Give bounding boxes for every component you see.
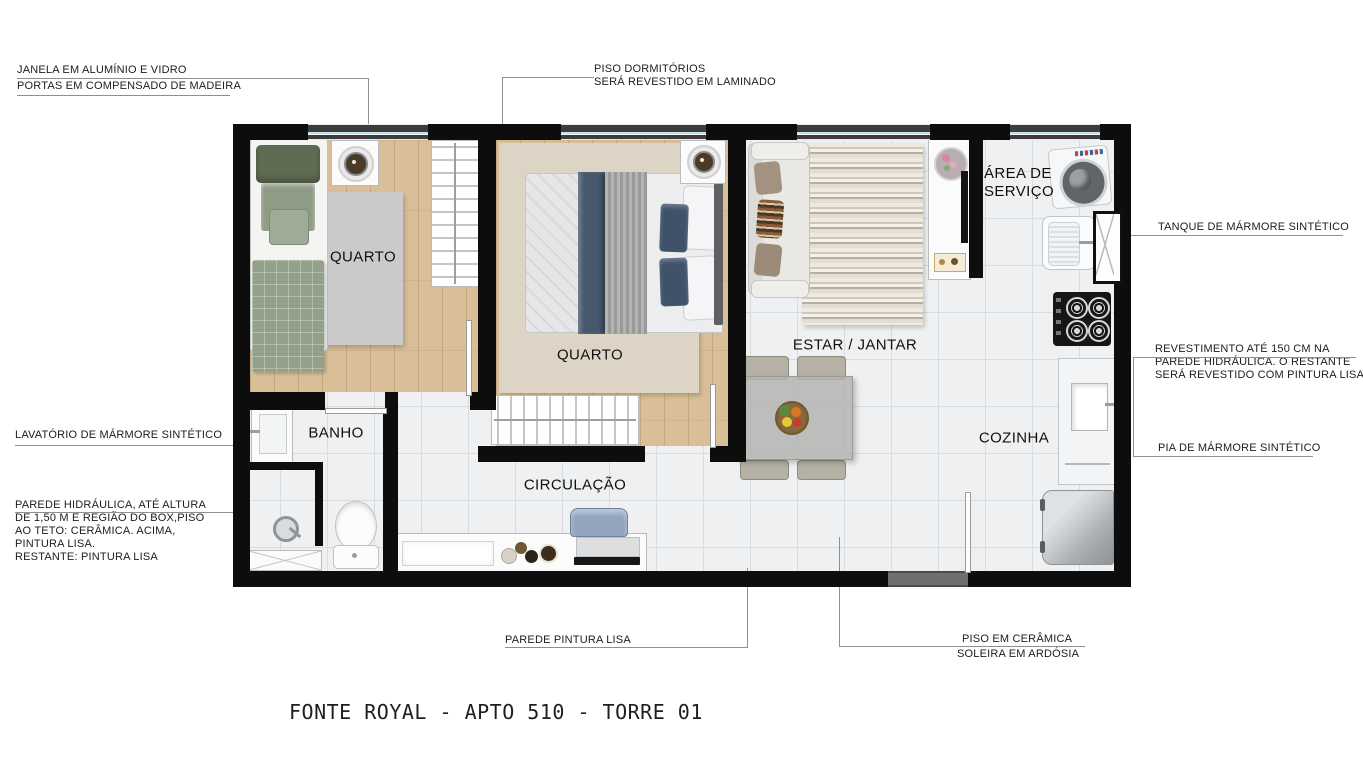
fridge-hinge-icon [1040, 541, 1045, 553]
shower-grate [248, 550, 322, 571]
wall-quarto2-bottom-b [710, 446, 746, 462]
callout-janela: JANELA EM ALUMÍNIO E VIDRO [17, 64, 187, 77]
pillow-navy-2 [659, 258, 689, 307]
wall-banho-top-a [233, 392, 325, 410]
kitchen-sink [1071, 383, 1108, 431]
toilet [333, 501, 377, 571]
burner-icon [1088, 320, 1110, 342]
leader-revestimento-h [1133, 357, 1356, 358]
stove-knobs-icon [1056, 298, 1061, 340]
wall-right [1114, 124, 1131, 587]
tv-rack [928, 138, 971, 280]
floorplan-canvas: QUARTO QUARTO BANHO CIRCULAÇÃO ESTAR / J… [233, 124, 1131, 587]
wall-bottom-right [968, 571, 1131, 587]
plan-title: FONTE ROYAL - APTO 510 - TORRE 01 [289, 700, 703, 724]
leader-tanque [1128, 235, 1343, 236]
flush-button-icon [352, 553, 357, 558]
wall-banho-right [383, 410, 398, 571]
burner-icon [1088, 297, 1110, 319]
callout-revestimento: REVESTIMENTO ATÉ 150 CM NA PAREDE HIDRÁU… [1155, 343, 1363, 382]
desk-chair [570, 508, 628, 537]
duct-shaft [1093, 211, 1123, 284]
floorplan-page: QUARTO QUARTO BANHO CIRCULAÇÃO ESTAR / J… [0, 0, 1363, 767]
label-area-servico: ÁREA DE SERVIÇO [984, 165, 1054, 201]
callout-piso-dormitorios: PISO DORMITÓRIOS SERÁ REVESTIDO EM LAMIN… [594, 63, 776, 89]
leader-janela-h [17, 78, 369, 79]
shower-head-icon [273, 516, 299, 542]
table-fan-icon [687, 145, 721, 179]
label-quarto2: QUARTO [557, 347, 623, 364]
kitchen-counter [1058, 358, 1117, 485]
callout-pia: PIA DE MÁRMORE SINTÉTICO [1158, 442, 1321, 455]
wall-quarto2-bottom-a [478, 446, 645, 462]
decor-tray [934, 253, 966, 272]
fridge [1042, 490, 1114, 565]
callout-piso-ceramica-l1: PISO EM CERÂMICA [962, 633, 1072, 646]
label-estar-jantar: ESTAR / JANTAR [793, 337, 917, 354]
callout-parede-pintura: PAREDE PINTURA LISA [505, 634, 631, 647]
single-bed-quilt [252, 260, 324, 372]
fruit-bowl-icon [775, 401, 809, 435]
label-circulacao: CIRCULAÇÃO [524, 477, 626, 494]
sofa [748, 143, 810, 295]
door-leaf-entry [965, 492, 971, 573]
label-cozinha: COZINHA [979, 430, 1049, 447]
desk-setup [574, 537, 640, 567]
faucet-icon [250, 430, 260, 433]
leader-piso-dorm-h [502, 77, 594, 78]
dining-chair [740, 460, 789, 480]
sofa-pillow-striped [756, 199, 785, 239]
callout-lavatorio: LAVATÓRIO DE MÁRMORE SINTÉTICO [15, 429, 222, 442]
wardrobe-rail [454, 143, 456, 284]
washing-machine [1047, 144, 1112, 209]
bathroom-vanity [251, 405, 293, 463]
leader-piso-ceramica-h [839, 646, 1085, 647]
window-living [797, 124, 930, 140]
decor-plates [501, 540, 561, 566]
window-quarto2 [561, 124, 706, 140]
double-bed [525, 173, 723, 333]
sofa-armrest [751, 280, 809, 298]
fridge-hinge-icon [1040, 499, 1045, 511]
burner-icon [1066, 297, 1088, 319]
nightstand-quarto1 [331, 140, 379, 186]
shower-wall-right [315, 462, 323, 546]
sofa-pillow [753, 161, 782, 196]
leader-right-connector-v [1133, 357, 1134, 456]
headboard-quarto2 [714, 183, 723, 325]
pillow-navy-1 [659, 204, 689, 253]
leader-parede-pintura-h [505, 647, 748, 648]
laundry-tank [1042, 216, 1096, 270]
wall-bottom-left [233, 571, 888, 587]
leader-parede-hidraulica [15, 512, 240, 513]
callout-portas: PORTAS EM COMPENSADO DE MADEIRA [17, 80, 241, 93]
door-leaf-quarto1 [466, 320, 472, 396]
callout-tanque: TANQUE DE MÁRMORE SINTÉTICO [1158, 221, 1349, 234]
dining-table [737, 376, 853, 460]
sofa-pillow [753, 243, 782, 278]
wardrobe-rail [494, 419, 636, 421]
leader-lavatorio [15, 445, 237, 446]
hallway-sideboard [395, 533, 647, 572]
wall-banho-top-c [470, 392, 496, 410]
tank-faucet-icon [1079, 241, 1093, 244]
door-leaf-quarto2 [710, 384, 716, 448]
table-fan-icon [338, 146, 374, 182]
burner-icon [1066, 320, 1088, 342]
wall-servico-divider [969, 140, 983, 278]
cooktop [1053, 292, 1111, 346]
leader-portas-underline [17, 95, 230, 96]
window-quarto1 [308, 124, 428, 140]
wall-quarto2-right [728, 140, 746, 446]
shower-wall-top [248, 462, 323, 470]
wall-quartos-divider [478, 140, 496, 410]
sofa-armrest [751, 142, 809, 160]
callout-piso-ceramica-l2: SOLEIRA EM ARDÓSIA [957, 648, 1079, 661]
nightstand-quarto2 [680, 140, 726, 184]
washer-controls-icon [1075, 149, 1103, 156]
label-quarto1: QUARTO [330, 249, 396, 266]
tv-icon [961, 171, 968, 243]
wall-left [233, 124, 250, 587]
leader-pia [1133, 456, 1313, 457]
entry-threshold-slate [888, 571, 968, 587]
wardrobe-quarto1 [431, 140, 480, 287]
wardrobe-quarto2 [491, 395, 639, 445]
door-leaf-banho [325, 408, 387, 414]
leader-piso-ceramica-v [839, 537, 840, 646]
living-rug [802, 143, 923, 325]
washer-door-icon [1058, 157, 1110, 209]
dining-chair [797, 460, 846, 480]
label-banho: BANHO [308, 425, 363, 442]
callout-parede-hidraulica: PAREDE HIDRÁULICA, ATÉ ALTURA DE 1,50 M … [15, 499, 206, 564]
window-servico [1010, 124, 1100, 140]
